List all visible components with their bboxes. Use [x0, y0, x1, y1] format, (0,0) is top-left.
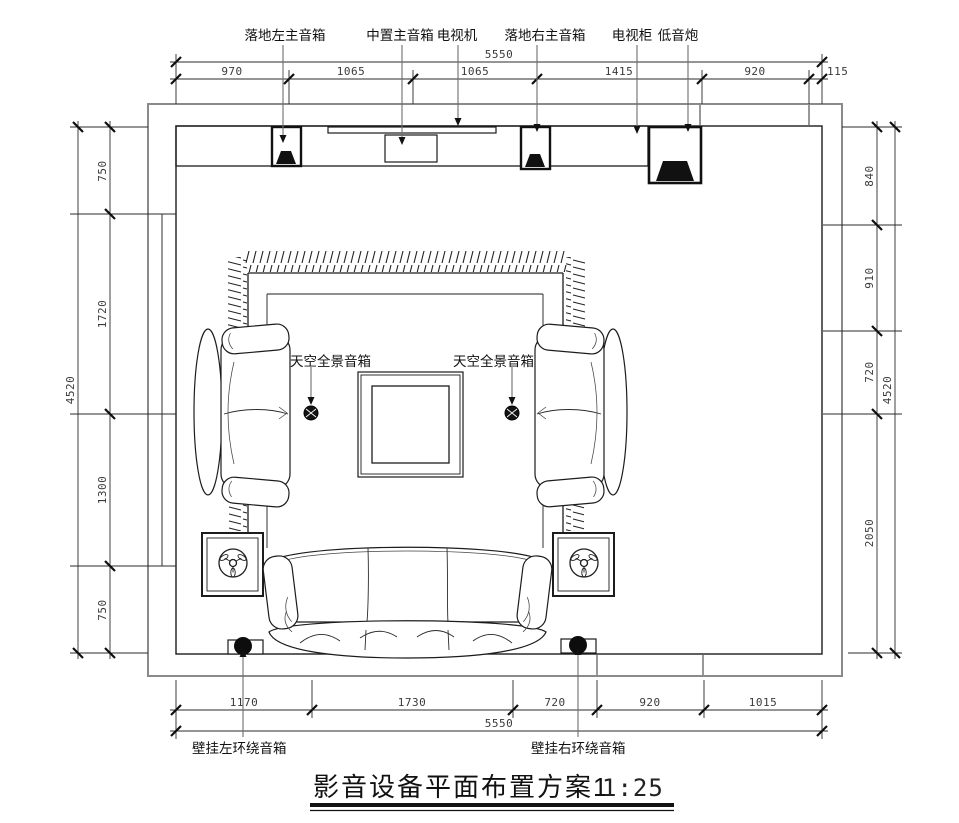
- bottom-wall-joints: [597, 655, 703, 675]
- rug-fringe-left-lower: [229, 502, 247, 531]
- rug-fringe-left-upper: [228, 257, 247, 330]
- subwoofer-box: [649, 127, 701, 183]
- dim-top-seg-0: 970: [221, 65, 242, 78]
- left-dimension-chain: 4520 750 1720 1300 750: [64, 121, 176, 659]
- floor-plan-page: 5550 970 1065 1065 1415 920 115 1170 173…: [0, 0, 959, 823]
- floor-right-main-speaker: [521, 127, 550, 169]
- label-wall-surround-left: 壁挂左环绕音箱: [192, 740, 287, 756]
- dim-top-seg-1: 1065: [337, 65, 366, 78]
- rug-fringe-top: [245, 251, 567, 272]
- dim-left-seg-0: 750: [96, 160, 109, 181]
- sofa-backrest: [282, 547, 533, 622]
- dim-top-seg-4: 920: [744, 65, 765, 78]
- top-wall-joints: [700, 105, 809, 125]
- drawing-scale: 1:25: [602, 774, 664, 802]
- left-side-table: [202, 533, 263, 596]
- dim-right-total: 4520: [881, 376, 894, 405]
- left-wall-joints: [149, 214, 175, 566]
- tv-set: [328, 127, 496, 133]
- dim-left-seg-1: 1720: [96, 300, 109, 329]
- bottom-dimension-chain: 1170 1730 720 920 1015 5550: [170, 680, 828, 739]
- label-subwoofer: 低音炮: [658, 27, 699, 43]
- dim-bottom-seg-0: 1170: [230, 696, 259, 709]
- label-sky-right: 天空全景音箱: [453, 353, 534, 369]
- title-underline-thick: [310, 803, 674, 807]
- rug-fringe-right-lower: [566, 502, 584, 531]
- right-dimension-chain: 840 910 720 2050 4520: [823, 121, 902, 659]
- dim-left-seg-2: 1300: [96, 476, 109, 505]
- dim-right-seg-2: 720: [863, 361, 876, 382]
- dim-bottom-seg-4: 1015: [749, 696, 778, 709]
- coffee-table: [358, 372, 463, 477]
- chair-arm-pillow-top: [221, 323, 290, 355]
- right-armchair: [535, 323, 627, 508]
- right-side-table: [553, 533, 614, 596]
- chair-back-cushion: [194, 329, 222, 495]
- label-floor-left-main: 落地左主音箱: [245, 27, 326, 43]
- dim-top-total: 5550: [485, 48, 514, 61]
- top-dimension-chain: 5550 970 1065 1065 1415 920 115: [170, 48, 848, 104]
- dim-bottom-seg-2: 720: [544, 696, 565, 709]
- chair-arm-pillow-bottom: [536, 476, 605, 508]
- dim-right-seg-1: 910: [863, 267, 876, 288]
- left-armchair: [194, 323, 290, 508]
- dim-top-seg-2: 1065: [461, 65, 490, 78]
- title-block: 影音设备平面布置方案1 1:25: [310, 772, 674, 811]
- label-tv-cabinet: 电视柜: [612, 28, 653, 43]
- dim-top-seg-5: 115: [827, 65, 848, 78]
- tv-wall-equipment: [176, 126, 701, 183]
- rug-fringe-right-upper: [566, 257, 585, 330]
- sofa-seat: [269, 621, 546, 658]
- sofa: [262, 547, 554, 658]
- dim-bottom-seg-1: 1730: [398, 696, 427, 709]
- floor-plan-drawing: 5550 970 1065 1065 1415 920 115 1170 173…: [0, 0, 959, 823]
- dim-right-seg-3: 2050: [863, 519, 876, 548]
- dim-right-seg-0: 840: [863, 165, 876, 186]
- dim-left-total: 4520: [64, 376, 77, 405]
- dim-bottom-seg-3: 920: [639, 696, 660, 709]
- drawing-title: 影音设备平面布置方案1: [313, 772, 609, 802]
- chair-arm-pillow-bottom: [221, 476, 290, 508]
- floor-left-main-speaker: [272, 127, 301, 166]
- dim-bottom-total: 5550: [485, 717, 514, 730]
- label-sky-left: 天空全景音箱: [290, 353, 371, 369]
- label-tv: 电视机: [437, 28, 478, 43]
- label-floor-right-main: 落地右主音箱: [505, 27, 586, 43]
- chair-arm-pillow-top: [536, 323, 605, 355]
- center-speaker: [385, 135, 437, 162]
- label-center-main: 中置主音箱: [366, 27, 434, 43]
- right-wall-joints: [823, 225, 840, 331]
- dim-left-seg-3: 750: [96, 599, 109, 620]
- dim-top-seg-3: 1415: [605, 65, 634, 78]
- label-wall-surround-right: 壁挂右环绕音箱: [531, 740, 626, 756]
